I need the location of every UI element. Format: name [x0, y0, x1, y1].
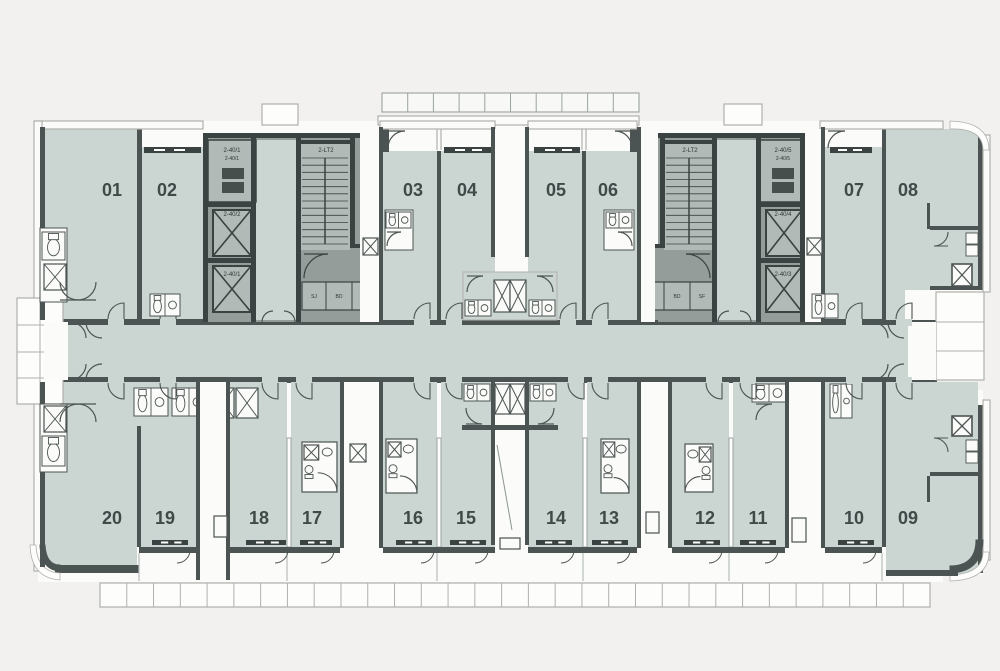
svg-text:SJ: SJ	[311, 294, 317, 300]
svg-text:13: 13	[599, 508, 619, 528]
svg-text:2-40/2: 2-40/2	[223, 212, 241, 218]
svg-text:BD: BD	[336, 294, 343, 300]
svg-text:20: 20	[102, 508, 122, 528]
svg-text:05: 05	[546, 180, 566, 200]
svg-text:18: 18	[249, 508, 269, 528]
svg-text:17: 17	[302, 508, 322, 528]
svg-text:09: 09	[898, 508, 918, 528]
svg-text:10: 10	[844, 508, 864, 528]
svg-text:2-LT2: 2-LT2	[682, 148, 698, 154]
svg-text:2-40/3: 2-40/3	[774, 272, 792, 278]
svg-text:2-40/5: 2-40/5	[776, 156, 790, 162]
svg-text:16: 16	[403, 508, 423, 528]
svg-text:07: 07	[844, 180, 864, 200]
svg-text:01: 01	[102, 180, 122, 200]
svg-text:12: 12	[695, 508, 715, 528]
svg-text:14: 14	[546, 508, 566, 528]
svg-text:06: 06	[598, 180, 618, 200]
svg-text:15: 15	[456, 508, 476, 528]
svg-text:2-40/1: 2-40/1	[223, 148, 241, 154]
svg-text:2-40/5: 2-40/5	[774, 148, 792, 154]
svg-text:04: 04	[457, 180, 477, 200]
svg-text:19: 19	[155, 508, 175, 528]
svg-text:02: 02	[157, 180, 177, 200]
svg-text:BD: BD	[674, 294, 681, 300]
svg-text:2-40/4: 2-40/4	[774, 212, 792, 218]
svg-text:03: 03	[403, 180, 423, 200]
svg-text:11: 11	[748, 508, 767, 528]
svg-text:SF: SF	[699, 294, 705, 300]
svg-text:2-40/1: 2-40/1	[225, 156, 239, 162]
svg-text:2-LT2: 2-LT2	[318, 148, 334, 154]
svg-text:08: 08	[898, 180, 918, 200]
svg-text:2-40/1: 2-40/1	[223, 272, 241, 278]
